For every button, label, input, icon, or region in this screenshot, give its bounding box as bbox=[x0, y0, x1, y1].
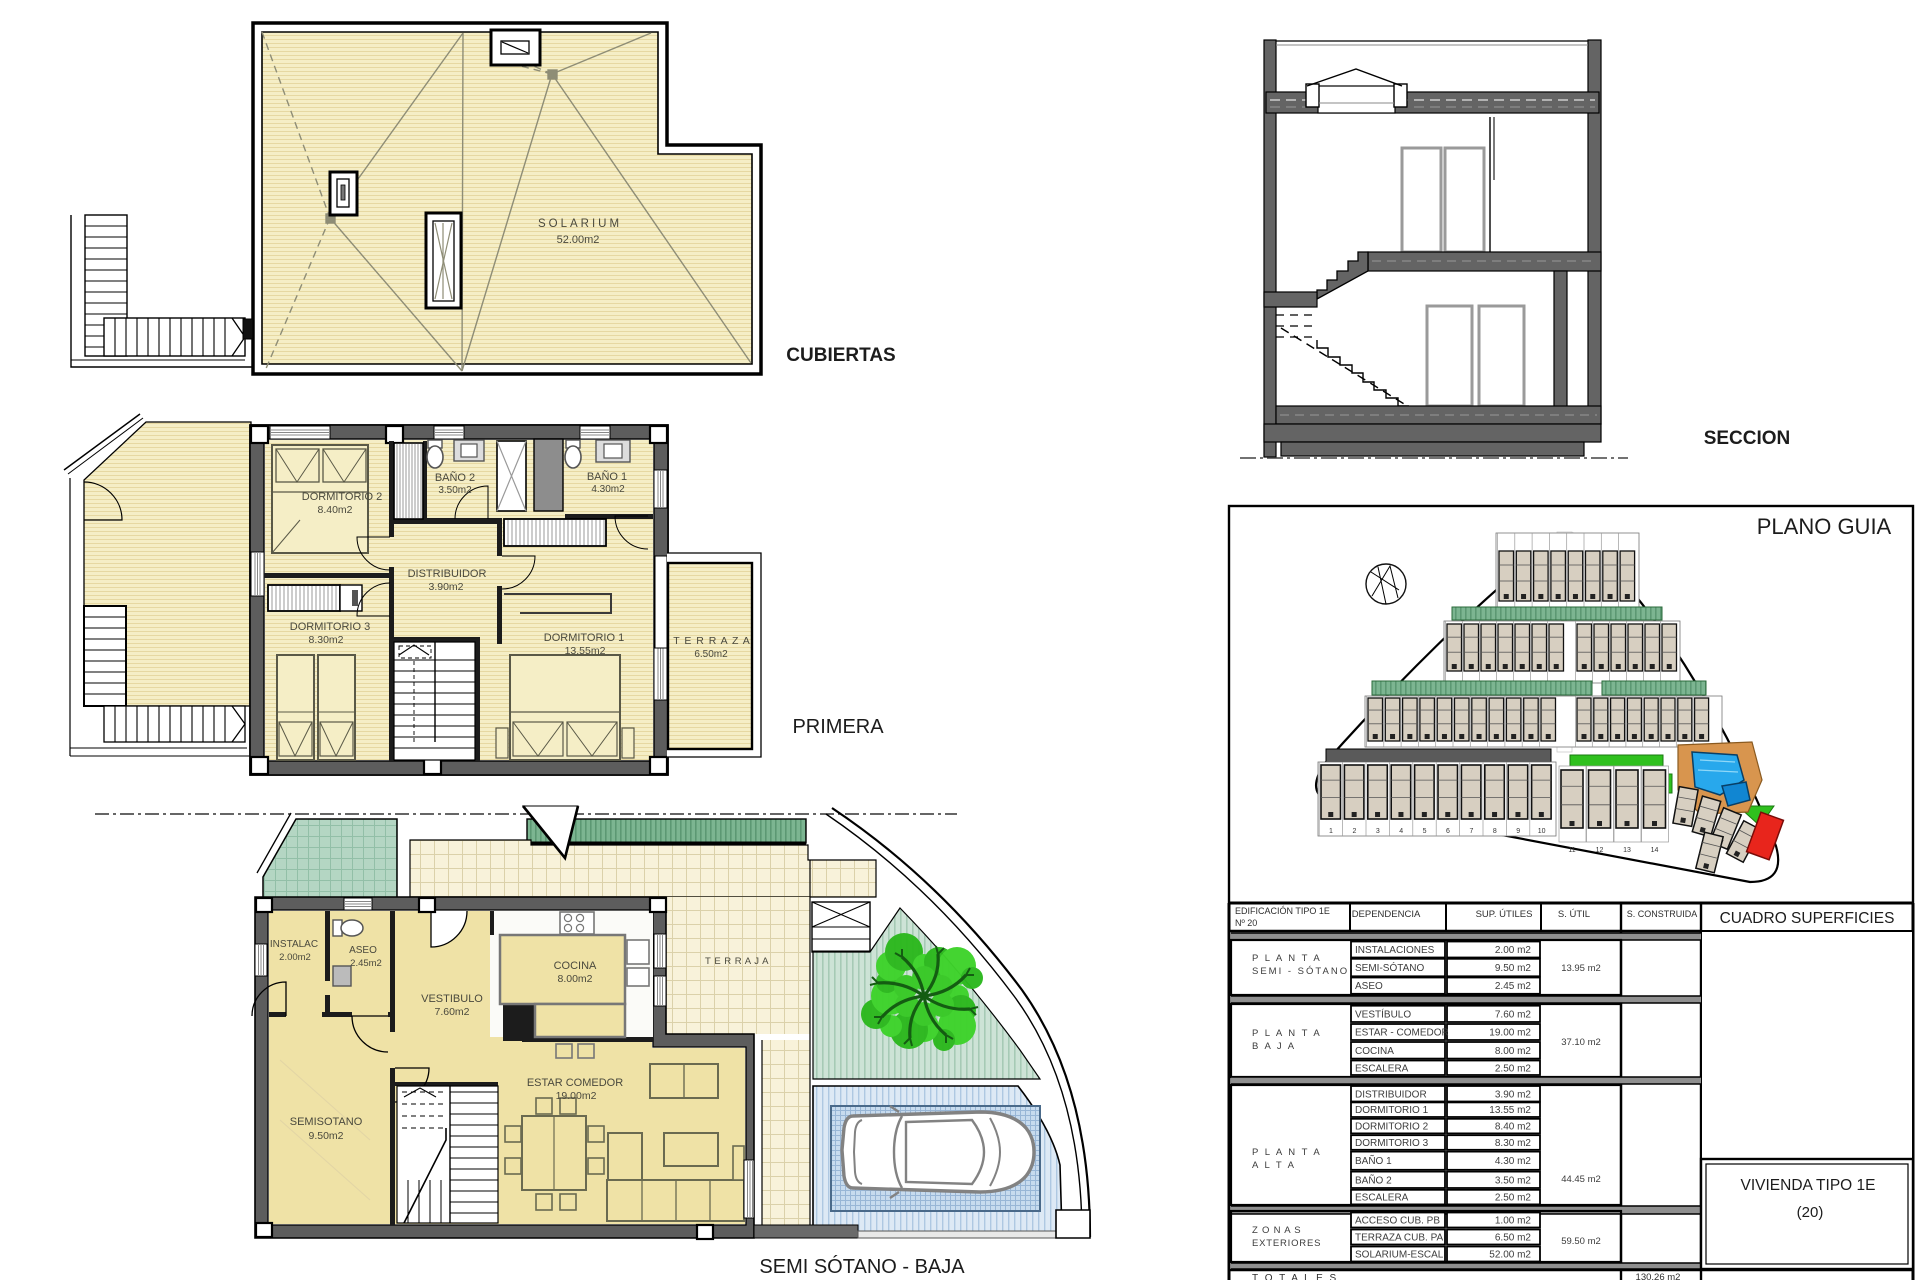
svg-text:SEMI SÓTANO - BAJA: SEMI SÓTANO - BAJA bbox=[759, 1255, 965, 1278]
svg-text:B A J A: B A J A bbox=[1252, 1041, 1296, 1052]
svg-text:8.00m2: 8.00m2 bbox=[557, 973, 592, 985]
svg-text:2.45m2: 2.45m2 bbox=[350, 958, 382, 969]
svg-text:ACCESO CUB. PB: ACCESO CUB. PB bbox=[1355, 1216, 1440, 1227]
svg-text:T O T A L E S: T O T A L E S bbox=[1252, 1273, 1338, 1280]
svg-text:52.00m2: 52.00m2 bbox=[557, 234, 600, 246]
svg-text:2.50 m2: 2.50 m2 bbox=[1495, 1063, 1532, 1074]
svg-text:DISTRIBUIDOR: DISTRIBUIDOR bbox=[408, 568, 487, 580]
svg-text:8.40 m2: 8.40 m2 bbox=[1495, 1122, 1532, 1133]
svg-text:9: 9 bbox=[1516, 828, 1520, 835]
svg-text:DORMITORIO 1: DORMITORIO 1 bbox=[1355, 1105, 1429, 1116]
svg-text:P L A N T A: P L A N T A bbox=[1252, 1028, 1322, 1039]
svg-text:11: 11 bbox=[1568, 847, 1575, 854]
svg-text:6: 6 bbox=[1446, 828, 1450, 835]
svg-text:VESTÍBULO: VESTÍBULO bbox=[1355, 1007, 1411, 1020]
svg-text:44.45 m2: 44.45 m2 bbox=[1561, 1174, 1601, 1185]
svg-text:S. ÚTIL: S. ÚTIL bbox=[1558, 909, 1590, 920]
svg-text:8.40m2: 8.40m2 bbox=[317, 504, 352, 516]
svg-text:130.26 m2: 130.26 m2 bbox=[1636, 1272, 1681, 1280]
svg-text:INSTALACIONES: INSTALACIONES bbox=[1355, 945, 1435, 956]
svg-text:13.55m2: 13.55m2 bbox=[565, 645, 606, 657]
svg-text:DISTRIBUIDOR: DISTRIBUIDOR bbox=[1355, 1089, 1427, 1100]
svg-text:59.50 m2: 59.50 m2 bbox=[1561, 1236, 1601, 1247]
svg-text:ESTAR COMEDOR: ESTAR COMEDOR bbox=[527, 1077, 623, 1089]
svg-text:1.00 m2: 1.00 m2 bbox=[1495, 1216, 1532, 1227]
svg-text:DORMITORIO 3: DORMITORIO 3 bbox=[290, 621, 370, 633]
svg-text:3: 3 bbox=[1376, 828, 1380, 835]
svg-text:19.00 m2: 19.00 m2 bbox=[1489, 1028, 1531, 1039]
svg-text:PLANO GUIA: PLANO GUIA bbox=[1757, 514, 1892, 539]
svg-text:2: 2 bbox=[1352, 828, 1356, 835]
svg-text:DEPENDENCIA: DEPENDENCIA bbox=[1352, 909, 1421, 920]
svg-text:BAÑO 1: BAÑO 1 bbox=[1355, 1154, 1392, 1167]
svg-text:DORMITORIO 3: DORMITORIO 3 bbox=[1355, 1138, 1429, 1149]
svg-text:COCINA: COCINA bbox=[1355, 1046, 1394, 1057]
svg-text:ASEO: ASEO bbox=[349, 945, 377, 956]
svg-text:3.50 m2: 3.50 m2 bbox=[1495, 1175, 1532, 1186]
svg-text:3.90m2: 3.90m2 bbox=[428, 581, 463, 593]
svg-text:9.50 m2: 9.50 m2 bbox=[1495, 963, 1532, 974]
svg-text:VESTIBULO: VESTIBULO bbox=[421, 993, 483, 1005]
svg-text:13.95 m2: 13.95 m2 bbox=[1561, 963, 1601, 974]
svg-text:INSTALAC: INSTALAC bbox=[270, 939, 318, 950]
svg-text:2.00m2: 2.00m2 bbox=[279, 952, 311, 963]
svg-text:SOLARIUM-ESCAL: SOLARIUM-ESCAL bbox=[1355, 1250, 1444, 1261]
svg-text:13.55 m2: 13.55 m2 bbox=[1489, 1105, 1531, 1116]
svg-text:S. CONSTRUIDA: S. CONSTRUIDA bbox=[1627, 909, 1698, 919]
svg-text:A L T A: A L T A bbox=[1252, 1160, 1296, 1171]
svg-text:2.50 m2: 2.50 m2 bbox=[1495, 1193, 1532, 1204]
svg-text:PRIMERA: PRIMERA bbox=[792, 716, 884, 738]
svg-text:13: 13 bbox=[1623, 847, 1631, 854]
svg-text:4: 4 bbox=[1399, 828, 1403, 835]
svg-text:7: 7 bbox=[1469, 828, 1473, 835]
svg-text:P L A N T A: P L A N T A bbox=[1252, 953, 1322, 964]
svg-text:14: 14 bbox=[1651, 847, 1659, 854]
svg-text:8.30m2: 8.30m2 bbox=[308, 634, 343, 646]
svg-text:ESCALERA: ESCALERA bbox=[1355, 1063, 1409, 1074]
svg-text:5: 5 bbox=[1423, 828, 1427, 835]
svg-text:SEMI - SÓTANO: SEMI - SÓTANO bbox=[1252, 966, 1349, 977]
svg-text:DORMITORIO 1: DORMITORIO 1 bbox=[544, 632, 624, 644]
svg-text:10: 10 bbox=[1538, 828, 1546, 835]
svg-text:T E R R A Z A: T E R R A Z A bbox=[673, 635, 751, 647]
svg-text:SEMISOTANO: SEMISOTANO bbox=[290, 1116, 363, 1128]
svg-text:4.30 m2: 4.30 m2 bbox=[1495, 1156, 1532, 1167]
svg-text:7.60 m2: 7.60 m2 bbox=[1495, 1009, 1532, 1020]
svg-text:COCINA: COCINA bbox=[554, 960, 597, 972]
svg-text:VIVIENDA TIPO 1E: VIVIENDA TIPO 1E bbox=[1741, 1177, 1876, 1194]
svg-text:ASEO: ASEO bbox=[1355, 981, 1383, 992]
svg-text:SOLARIUM: SOLARIUM bbox=[538, 218, 622, 230]
svg-text:ESCALERA: ESCALERA bbox=[1355, 1193, 1409, 1204]
svg-text:8.30 m2: 8.30 m2 bbox=[1495, 1138, 1532, 1149]
svg-text:BAÑO 2: BAÑO 2 bbox=[1355, 1173, 1392, 1186]
svg-text:2.45 m2: 2.45 m2 bbox=[1495, 981, 1532, 992]
svg-text:6.50m2: 6.50m2 bbox=[694, 649, 728, 660]
svg-text:2.00 m2: 2.00 m2 bbox=[1495, 945, 1532, 956]
svg-text:CUADRO SUPERFICIES: CUADRO SUPERFICIES bbox=[1720, 910, 1895, 927]
svg-text:P L A N T A: P L A N T A bbox=[1252, 1147, 1322, 1158]
svg-text:(20): (20) bbox=[1797, 1204, 1824, 1221]
svg-text:37.10 m2: 37.10 m2 bbox=[1561, 1037, 1601, 1048]
svg-text:DORMITORIO 2: DORMITORIO 2 bbox=[302, 491, 382, 503]
svg-text:4.30m2: 4.30m2 bbox=[591, 484, 625, 495]
svg-text:3.50m2: 3.50m2 bbox=[438, 485, 472, 496]
svg-text:ESTAR - COMEDOR: ESTAR - COMEDOR bbox=[1355, 1028, 1449, 1039]
svg-text:BAÑO 2: BAÑO 2 bbox=[435, 471, 475, 484]
svg-text:6.50 m2: 6.50 m2 bbox=[1495, 1233, 1532, 1244]
svg-text:SECCION: SECCION bbox=[1704, 428, 1791, 449]
svg-text:Nº 20: Nº 20 bbox=[1235, 918, 1257, 928]
svg-text:12: 12 bbox=[1596, 847, 1604, 854]
svg-text:3.90 m2: 3.90 m2 bbox=[1495, 1089, 1532, 1100]
svg-text:SEMI-SÓTANO: SEMI-SÓTANO bbox=[1355, 961, 1424, 974]
svg-text:TERRAZA CUB. PA: TERRAZA CUB. PA bbox=[1355, 1233, 1443, 1244]
svg-text:9.50m2: 9.50m2 bbox=[308, 1130, 343, 1142]
svg-text:SUP. ÚTILES: SUP. ÚTILES bbox=[1476, 909, 1533, 920]
svg-text:T E R R A J A: T E R R A J A bbox=[705, 956, 769, 967]
svg-text:8.00 m2: 8.00 m2 bbox=[1495, 1046, 1532, 1057]
svg-text:CUBIERTAS: CUBIERTAS bbox=[786, 345, 895, 366]
svg-text:8: 8 bbox=[1493, 828, 1497, 835]
svg-text:DORMITORIO 2: DORMITORIO 2 bbox=[1355, 1122, 1429, 1133]
svg-text:1: 1 bbox=[1329, 828, 1333, 835]
svg-text:52.00 m2: 52.00 m2 bbox=[1489, 1250, 1531, 1261]
svg-text:EXTERIORES: EXTERIORES bbox=[1252, 1238, 1321, 1249]
svg-text:EDIFICACIÓN TIPO 1E: EDIFICACIÓN TIPO 1E bbox=[1235, 906, 1330, 916]
svg-text:19.00m2: 19.00m2 bbox=[556, 1090, 597, 1102]
svg-text:7.60m2: 7.60m2 bbox=[434, 1006, 469, 1018]
svg-text:BAÑO 1: BAÑO 1 bbox=[587, 470, 627, 483]
svg-text:Z O N A S: Z O N A S bbox=[1252, 1225, 1301, 1236]
